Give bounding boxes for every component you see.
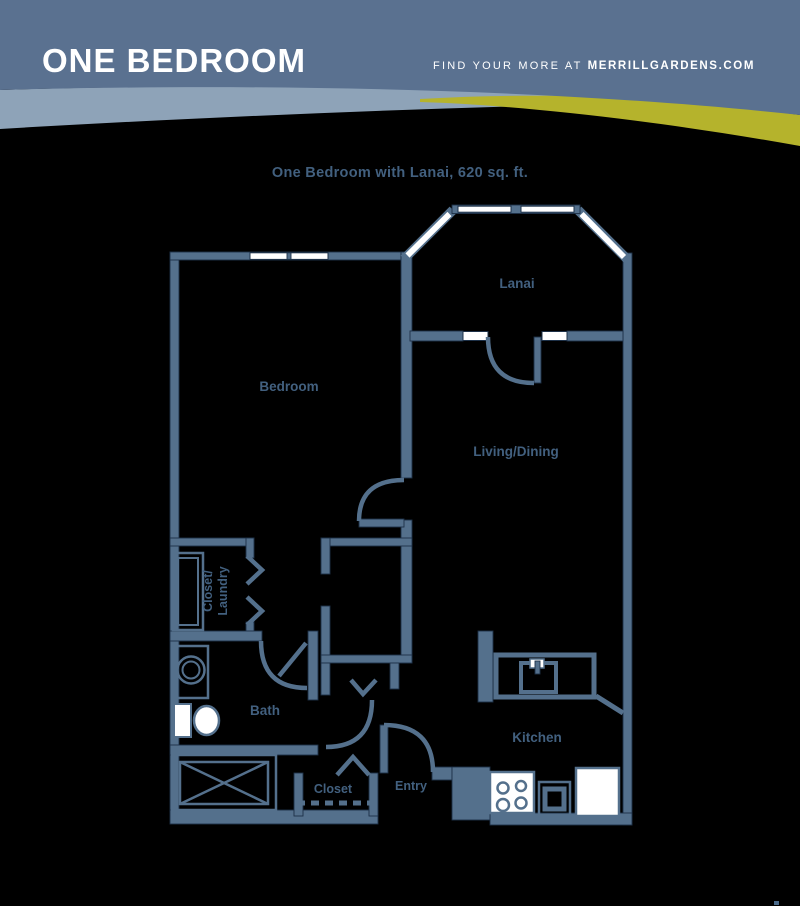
- floorplan-flyer: ONE BEDROOM FIND YOUR MORE AT MERRILLGAR…: [0, 0, 800, 906]
- bedroom-door-leaf: [359, 519, 404, 527]
- tagline-site: MERRILLGARDENS.COM: [588, 60, 755, 72]
- wall: [246, 538, 254, 558]
- wall: [321, 655, 412, 663]
- wall: [170, 745, 318, 755]
- floorplan-title: One Bedroom with Lanai, 620 sq. ft.: [272, 165, 528, 181]
- label-closet-laundry: Closet/Laundry: [201, 566, 230, 615]
- header-tagline: FIND YOUR MORE AT MERRILLGARDENS.COM: [433, 60, 755, 72]
- wall: [170, 538, 254, 546]
- tagline-regular: FIND YOUR MORE AT: [433, 60, 588, 72]
- wall: [401, 252, 412, 478]
- toilet-icon: [174, 704, 191, 737]
- wall: [321, 606, 330, 663]
- wall: [321, 538, 330, 574]
- wall: [170, 631, 262, 641]
- wall: [170, 810, 378, 824]
- kitchen-faucet-icon: [535, 661, 540, 674]
- wall: [623, 253, 632, 825]
- page-background: [0, 0, 800, 906]
- wall: [390, 663, 399, 689]
- living-window: [463, 332, 488, 341]
- lanai-door-leaf: [534, 337, 541, 383]
- wall: [369, 773, 378, 816]
- wall: [308, 631, 318, 700]
- page-title: ONE BEDROOM: [42, 42, 306, 79]
- label-lanai: Lanai: [499, 276, 534, 291]
- window-mullion: [287, 253, 291, 260]
- wall: [294, 773, 303, 816]
- refrigerator-icon: [576, 768, 619, 816]
- label-entry: Entry: [395, 779, 427, 793]
- label-closet: Closet: [314, 782, 353, 796]
- wall: [452, 767, 490, 820]
- lanai-window: [521, 206, 574, 212]
- wall: [321, 538, 412, 546]
- wall: [567, 331, 623, 341]
- lanai-window: [458, 206, 511, 212]
- entry-door-leaf: [380, 725, 388, 773]
- wall: [478, 631, 493, 702]
- label-kitchen: Kitchen: [512, 730, 562, 745]
- living-window: [542, 332, 567, 341]
- toilet-icon: [194, 706, 219, 735]
- artifact-dot: [774, 901, 779, 905]
- flyer-canvas: ONE BEDROOM FIND YOUR MORE AT MERRILLGAR…: [0, 0, 800, 906]
- label-bath: Bath: [250, 703, 280, 718]
- wall: [410, 331, 463, 341]
- label-living-dining: Living/Dining: [473, 444, 559, 459]
- wall: [321, 663, 330, 695]
- label-bedroom: Bedroom: [259, 379, 318, 394]
